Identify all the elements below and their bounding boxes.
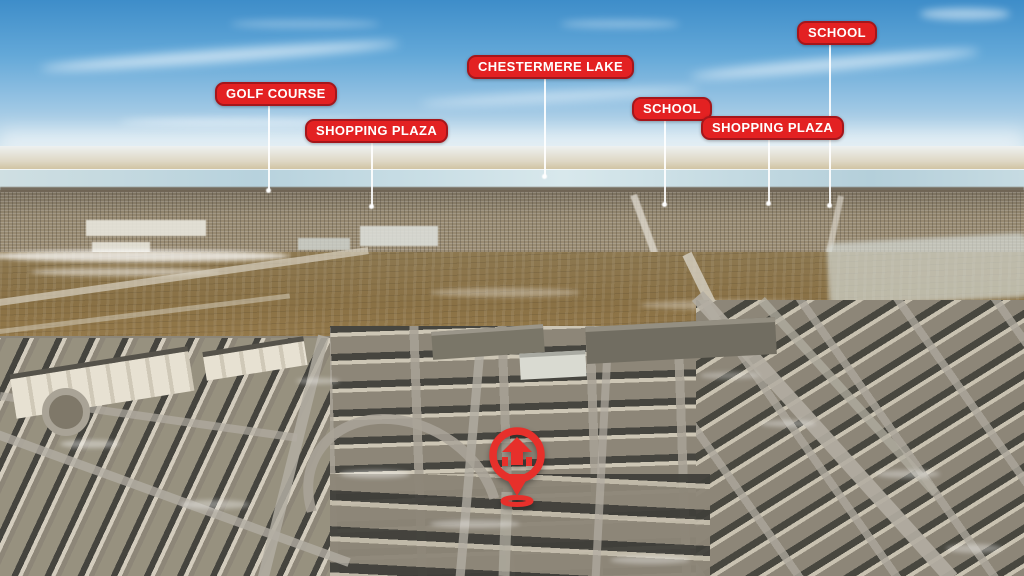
snow-patch [0, 250, 290, 262]
leader-dot [266, 188, 271, 193]
cloud [230, 20, 380, 28]
distant-building [86, 220, 206, 236]
snow-patch [430, 520, 520, 528]
snow-patch [296, 378, 340, 384]
label-golf-course: GOLF COURSE [215, 82, 337, 106]
label-school-central: SCHOOL [632, 97, 712, 121]
snow-patch [610, 556, 690, 564]
leader-dot [542, 174, 547, 179]
label-school-northeast: SCHOOL [797, 21, 877, 45]
snowy-development-site [826, 233, 1024, 307]
cloud [690, 45, 980, 82]
leader-line-shopping-plaza-east [768, 138, 770, 203]
leader-line-shopping-plaza-west [371, 141, 373, 206]
distant-road [630, 194, 658, 255]
leader-dot [662, 202, 667, 207]
cloud [920, 8, 1010, 20]
label-shopping-plaza-east: SHOPPING PLAZA [701, 116, 844, 140]
snow-patch [60, 440, 120, 448]
snow-patch [760, 420, 816, 427]
leader-dot [766, 201, 771, 206]
leader-line-school-central [664, 119, 666, 204]
leader-dot [369, 204, 374, 209]
snow-patch [340, 470, 410, 478]
snow-patch [430, 288, 580, 297]
leader-dot [827, 203, 832, 208]
commercial-building [519, 350, 586, 379]
snow-patch [180, 500, 250, 509]
distant-building [298, 238, 350, 250]
leader-line-chestermere-lake [544, 77, 546, 176]
label-chestermere-lake: CHESTERMERE LAKE [467, 55, 634, 79]
snow-patch [700, 372, 760, 379]
snow-patch [876, 470, 940, 478]
snow-patch [946, 544, 1002, 553]
cloud [40, 37, 400, 74]
distant-building [360, 226, 438, 246]
cloud [560, 20, 680, 28]
house-arrow-up-pin-icon [484, 424, 550, 510]
roundabout [42, 388, 90, 436]
leader-line-golf-course [268, 104, 270, 190]
aerial-neighbourhood-photo: GOLF COURSE SHOPPING PLAZA CHESTERMERE L… [0, 0, 1024, 576]
label-shopping-plaza-west: SHOPPING PLAZA [305, 119, 448, 143]
